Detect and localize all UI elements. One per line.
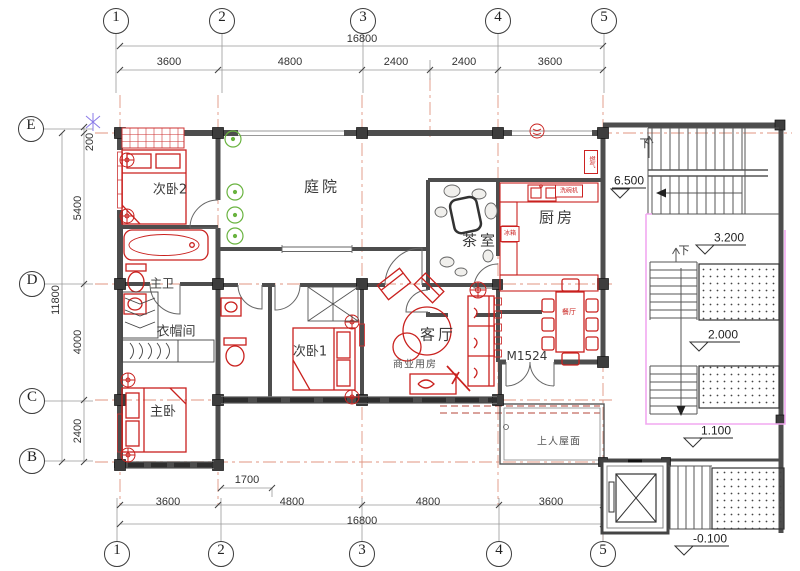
room-label-kitchen: 厨房 (539, 207, 575, 228)
axis-bubble-left-e: E (18, 116, 44, 142)
room-label-commercial: 商业用房 (393, 356, 437, 371)
level-3200: 3.200 (712, 231, 746, 246)
axis-bubble-bottom-2: 2 (208, 541, 234, 567)
room-label-courtyard: 庭院 (304, 176, 340, 197)
room-label-master-bed: 主卧 (150, 401, 176, 420)
room-label-bedroom2: 次卧2 (153, 179, 187, 198)
toilet-master-bath (126, 264, 146, 292)
staircase-upper (645, 128, 779, 214)
hatch-area-upper (699, 264, 779, 320)
door-mark-m1524: M1524 (507, 349, 548, 363)
floor-lamp (447, 366, 470, 391)
level-2000: 2.000 (706, 328, 740, 343)
floor-plan-canvas: 1 2 3 4 5 1 2 3 4 5 E D C B 16800 3600 4… (0, 0, 800, 571)
dim-top-seg-3: 2400 (384, 56, 408, 68)
hatch-area-bottom (712, 468, 784, 529)
dim-left-seg-1: 200 (84, 133, 96, 151)
dim-top-total: 16800 (347, 33, 378, 45)
axis-bubble-bottom-1: 1 (104, 541, 130, 567)
axis-bubble-top-5: 5 (591, 8, 617, 34)
double-door-m1524 (506, 362, 554, 386)
room-label-living: 客厅 (420, 324, 456, 345)
axis-bubble-left-d: D (19, 271, 45, 297)
window-planter (122, 128, 184, 148)
entry-steps (668, 466, 712, 529)
tv-bench (410, 374, 456, 394)
roof-dashed-line (440, 406, 600, 413)
dim-top-seg-2: 4800 (278, 56, 302, 68)
dim-bottom-seg-3: 4800 (416, 496, 440, 508)
level-6500: 6.500 (612, 174, 646, 189)
axis-bubble-left-b: B (19, 448, 45, 474)
axis-bubble-top-3: 3 (350, 8, 376, 34)
meter-tag: 燃气 (584, 150, 598, 174)
level-1100: 1.100 (699, 424, 733, 439)
dim-top-seg-1: 3600 (157, 56, 181, 68)
staircase-lower (650, 248, 697, 416)
room-label-dining: 餐厅 (562, 307, 576, 317)
room-label-bedroom1: 次卧1 (293, 341, 327, 360)
elevator-shaft (602, 461, 668, 533)
plan-linework (0, 0, 800, 571)
survey-mark (86, 113, 100, 131)
sink-bath2 (221, 298, 241, 316)
dim-top-seg-4: 2400 (452, 56, 476, 68)
axis-grid-lines (95, 78, 792, 540)
stair-down-lower: 下 (679, 242, 690, 258)
axis-bubble-top-4: 4 (485, 8, 511, 34)
kitchen-tag-dishwasher: 洗碗机 (555, 185, 583, 198)
dim-left-seg-2: 5400 (72, 196, 84, 220)
kitchen-tag-fridge: 冰箱 (501, 226, 520, 242)
dim-left-seg-3: 4000 (72, 330, 84, 354)
room-label-master-bath: 主卫 (150, 275, 174, 292)
dim-bottom-seg-1: 3600 (156, 496, 180, 508)
axis-bubble-bottom-3: 3 (349, 541, 375, 567)
dim-left-total: 11800 (50, 285, 62, 315)
stair-down-upper: 下 (640, 135, 651, 151)
sofa (468, 296, 494, 386)
axis-bubble-bottom-4: 4 (486, 541, 512, 567)
room-label-roof: 上人屋面 (537, 433, 581, 448)
dim-bottom-total: 16800 (347, 515, 378, 527)
room-label-tea: 茶室 (462, 230, 498, 251)
toilet-bath2 (224, 338, 246, 366)
closet-bedroom1 (308, 287, 358, 321)
axis-bubble-top-2: 2 (209, 8, 235, 34)
bed-master (122, 388, 186, 452)
structural-columns (115, 120, 786, 471)
room-label-cloak: 衣帽间 (156, 321, 195, 340)
dim-offset-1700: 1700 (235, 474, 259, 486)
level-minus-0100: -0.100 (691, 532, 729, 547)
dim-top-seg-5: 3600 (538, 56, 562, 68)
axis-bubble-left-c: C (19, 388, 45, 414)
axis-bubble-bottom-5: 5 (590, 541, 616, 567)
bathtub (124, 230, 208, 260)
furniture (120, 124, 598, 462)
axis-bubble-top-1: 1 (103, 8, 129, 34)
dim-bottom-seg-2: 4800 (280, 496, 304, 508)
plant-icons (225, 131, 243, 244)
hatch-area-mid (699, 366, 779, 408)
dim-bottom-seg-4: 3600 (539, 496, 563, 508)
dim-left-seg-4: 2400 (72, 419, 84, 443)
dining-set (542, 279, 598, 365)
